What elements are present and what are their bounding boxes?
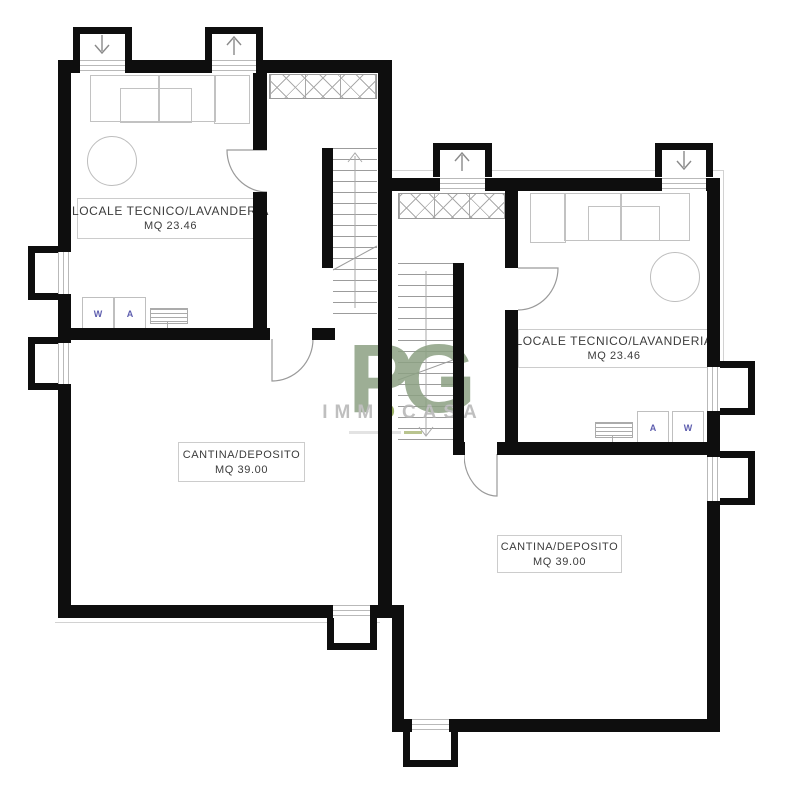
- wall: [58, 328, 270, 340]
- room-area: MQ 39.00: [533, 555, 586, 569]
- room-area: MQ 23.46: [144, 219, 197, 233]
- down-arrow-icon: [674, 149, 694, 173]
- boiler-tank: [650, 252, 700, 302]
- window-glazing: [412, 719, 449, 732]
- appliance-counter: [588, 206, 660, 241]
- stair-direction-arrow: [333, 148, 377, 315]
- radiator: [150, 308, 188, 324]
- door-arc: [271, 339, 314, 383]
- watermark-brand: IMMOCASA: [288, 402, 518, 424]
- room-label: LOCALE TECNICO/LAVANDERIA MQ 23.46: [518, 329, 710, 368]
- wall: [378, 60, 392, 618]
- vent-flue-glazing: [212, 60, 256, 73]
- washer-label: W: [684, 423, 693, 433]
- window-well: [720, 361, 755, 415]
- vent-flue-glazing: [80, 60, 125, 73]
- wall: [453, 263, 464, 455]
- vent-flue-glazing: [662, 178, 706, 191]
- wall: [322, 148, 333, 268]
- appliance-counter: [214, 75, 250, 124]
- washer-label: W: [94, 309, 103, 319]
- room-name: LOCALE TECNICO/LAVANDERIA: [72, 204, 269, 219]
- watermark-tagline: [349, 431, 401, 434]
- room-name: CANTINA/DEPOSITO: [501, 540, 619, 555]
- dryer-box: A: [114, 297, 146, 330]
- wall: [505, 191, 518, 268]
- window-well: [327, 618, 377, 650]
- boiler-tank: [87, 136, 137, 186]
- wall: [497, 442, 720, 455]
- grate-hatch: [269, 74, 377, 99]
- window-well: [720, 451, 755, 505]
- window-glazing: [707, 367, 720, 411]
- radiator: [595, 422, 633, 438]
- appliance-counter: [530, 193, 566, 243]
- window-well: [403, 732, 458, 767]
- floor-outline-line: [723, 170, 724, 363]
- window-glazing: [333, 605, 370, 618]
- window-well: [28, 337, 62, 390]
- window-glazing: [707, 457, 720, 501]
- dryer-box: A: [637, 411, 669, 444]
- room-name: CANTINA/DEPOSITO: [183, 448, 301, 463]
- room-label: CANTINA/DEPOSITO MQ 39.00: [178, 442, 305, 482]
- up-arrow-icon: [452, 149, 472, 173]
- dryer-label: A: [650, 423, 657, 433]
- down-arrow-icon: [92, 33, 112, 57]
- wall: [253, 192, 267, 332]
- room-area: MQ 23.46: [587, 349, 640, 363]
- wall: [253, 73, 267, 150]
- room-name: LOCALE TECNICO/LAVANDERIA: [515, 334, 712, 349]
- wall: [707, 178, 720, 732]
- wall: [392, 605, 404, 732]
- window-glazing: [58, 343, 71, 384]
- door-arc: [517, 267, 559, 311]
- floor-plan: W A LOCALE TECNICO/LAVANDERIA MQ 23.46 C…: [0, 0, 800, 787]
- wall: [312, 328, 335, 340]
- dryer-label: A: [127, 309, 134, 319]
- watermark: PG IMMOCASA: [348, 330, 458, 435]
- washer-box: W: [672, 411, 704, 444]
- door-arc: [226, 149, 268, 193]
- door-arc: [464, 454, 498, 498]
- window-glazing: [58, 252, 71, 294]
- vent-flue-glazing: [440, 178, 485, 191]
- grate-hatch: [398, 193, 507, 219]
- watermark-tagline: [404, 431, 422, 434]
- room-label: CANTINA/DEPOSITO MQ 39.00: [497, 535, 622, 573]
- window-well: [28, 246, 62, 300]
- room-label: LOCALE TECNICO/LAVANDERIA MQ 23.46: [77, 198, 264, 239]
- washer-box: W: [82, 297, 114, 330]
- wall: [505, 310, 518, 442]
- appliance-counter: [120, 88, 192, 123]
- room-area: MQ 39.00: [215, 463, 268, 477]
- up-arrow-icon: [224, 33, 244, 57]
